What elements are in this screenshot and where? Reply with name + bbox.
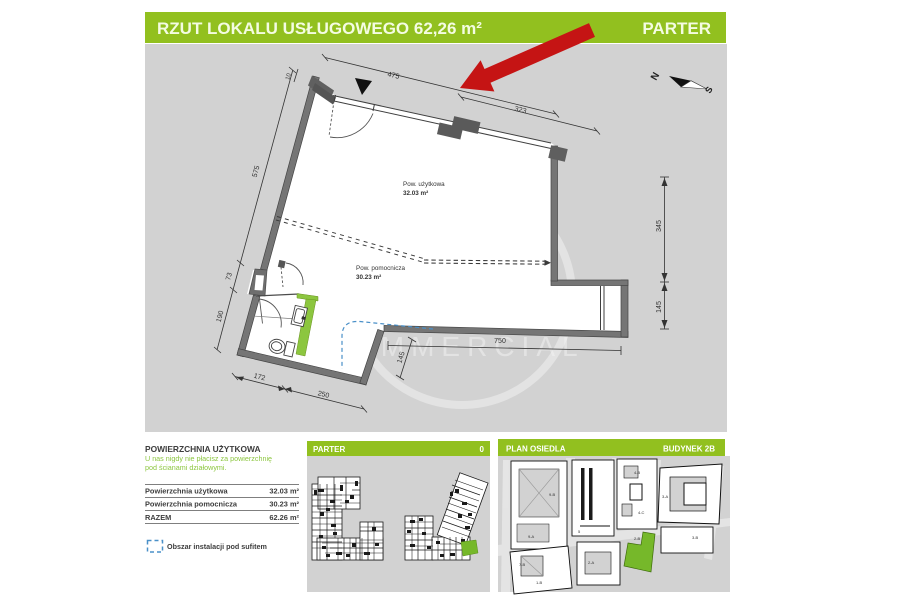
- svg-text:POWIERZCHNIA UŻYTKOWA: POWIERZCHNIA UŻYTKOWA: [145, 444, 261, 454]
- svg-text:Powierzchnia użytkowa: Powierzchnia użytkowa: [145, 487, 228, 496]
- svg-text:Powierzchnia pomocnicza: Powierzchnia pomocnicza: [145, 500, 238, 509]
- svg-text:pod ścianami działowymi.: pod ścianami działowymi.: [145, 463, 227, 472]
- svg-text:2-B: 2-B: [634, 536, 641, 541]
- svg-text:Pow. użytkowa: Pow. użytkowa: [403, 181, 445, 188]
- svg-text:32.03 m²: 32.03 m²: [269, 487, 299, 496]
- svg-text:9-B: 9-B: [549, 492, 556, 497]
- svg-text:4-C: 4-C: [638, 510, 645, 515]
- svg-text:1-B: 1-B: [536, 580, 543, 585]
- svg-text:PARTER: PARTER: [642, 19, 711, 38]
- svg-text:Pow. pomocnicza: Pow. pomocnicza: [356, 265, 405, 272]
- svg-text:U nas nigdy nie płacisz za pow: U nas nigdy nie płacisz za powierzchnię: [145, 454, 272, 463]
- svg-text:3-B: 3-B: [692, 535, 699, 540]
- svg-text:30.23 m²: 30.23 m²: [356, 274, 381, 281]
- svg-text:RZUT LOKALU USŁUGOWEGO 62,26 m: RZUT LOKALU USŁUGOWEGO 62,26 m²: [157, 19, 482, 38]
- svg-text:145: 145: [656, 301, 663, 313]
- svg-text:Obszar instalacji pod sufitem: Obszar instalacji pod sufitem: [167, 542, 267, 551]
- svg-text:32.03 m²: 32.03 m²: [403, 190, 428, 197]
- svg-text:7-B: 7-B: [519, 562, 526, 567]
- svg-text:BUDYNEK 2B: BUDYNEK 2B: [663, 445, 715, 454]
- svg-text:62.26 m²: 62.26 m²: [269, 513, 299, 522]
- svg-text:9-A: 9-A: [528, 534, 535, 539]
- svg-text:2-A: 2-A: [588, 560, 595, 565]
- svg-text:PLAN OSIEDLA: PLAN OSIEDLA: [506, 445, 566, 454]
- svg-text:750: 750: [494, 338, 506, 345]
- svg-text:3-A: 3-A: [662, 494, 669, 499]
- svg-text:345: 345: [656, 220, 663, 232]
- svg-text:0: 0: [480, 445, 485, 454]
- svg-text:30.23 m²: 30.23 m²: [269, 500, 299, 509]
- svg-text:PARTER: PARTER: [313, 445, 346, 454]
- svg-text:RAZEM: RAZEM: [145, 513, 171, 522]
- svg-text:4-B: 4-B: [634, 470, 641, 475]
